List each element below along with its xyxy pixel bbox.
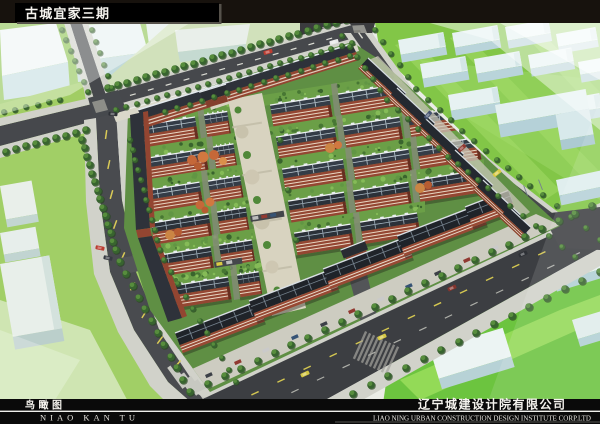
svg-text:鸟瞰图: 鸟瞰图 <box>25 399 62 412</box>
svg-text:LIAO NING URBAN CONSTRUCTION D: LIAO NING URBAN CONSTRUCTION DESIGN INST… <box>373 414 592 423</box>
svg-text:古城宜家三期: 古城宜家三期 <box>25 6 109 21</box>
svg-text:辽宁城建设计院有限公司: 辽宁城建设计院有限公司 <box>418 397 565 412</box>
